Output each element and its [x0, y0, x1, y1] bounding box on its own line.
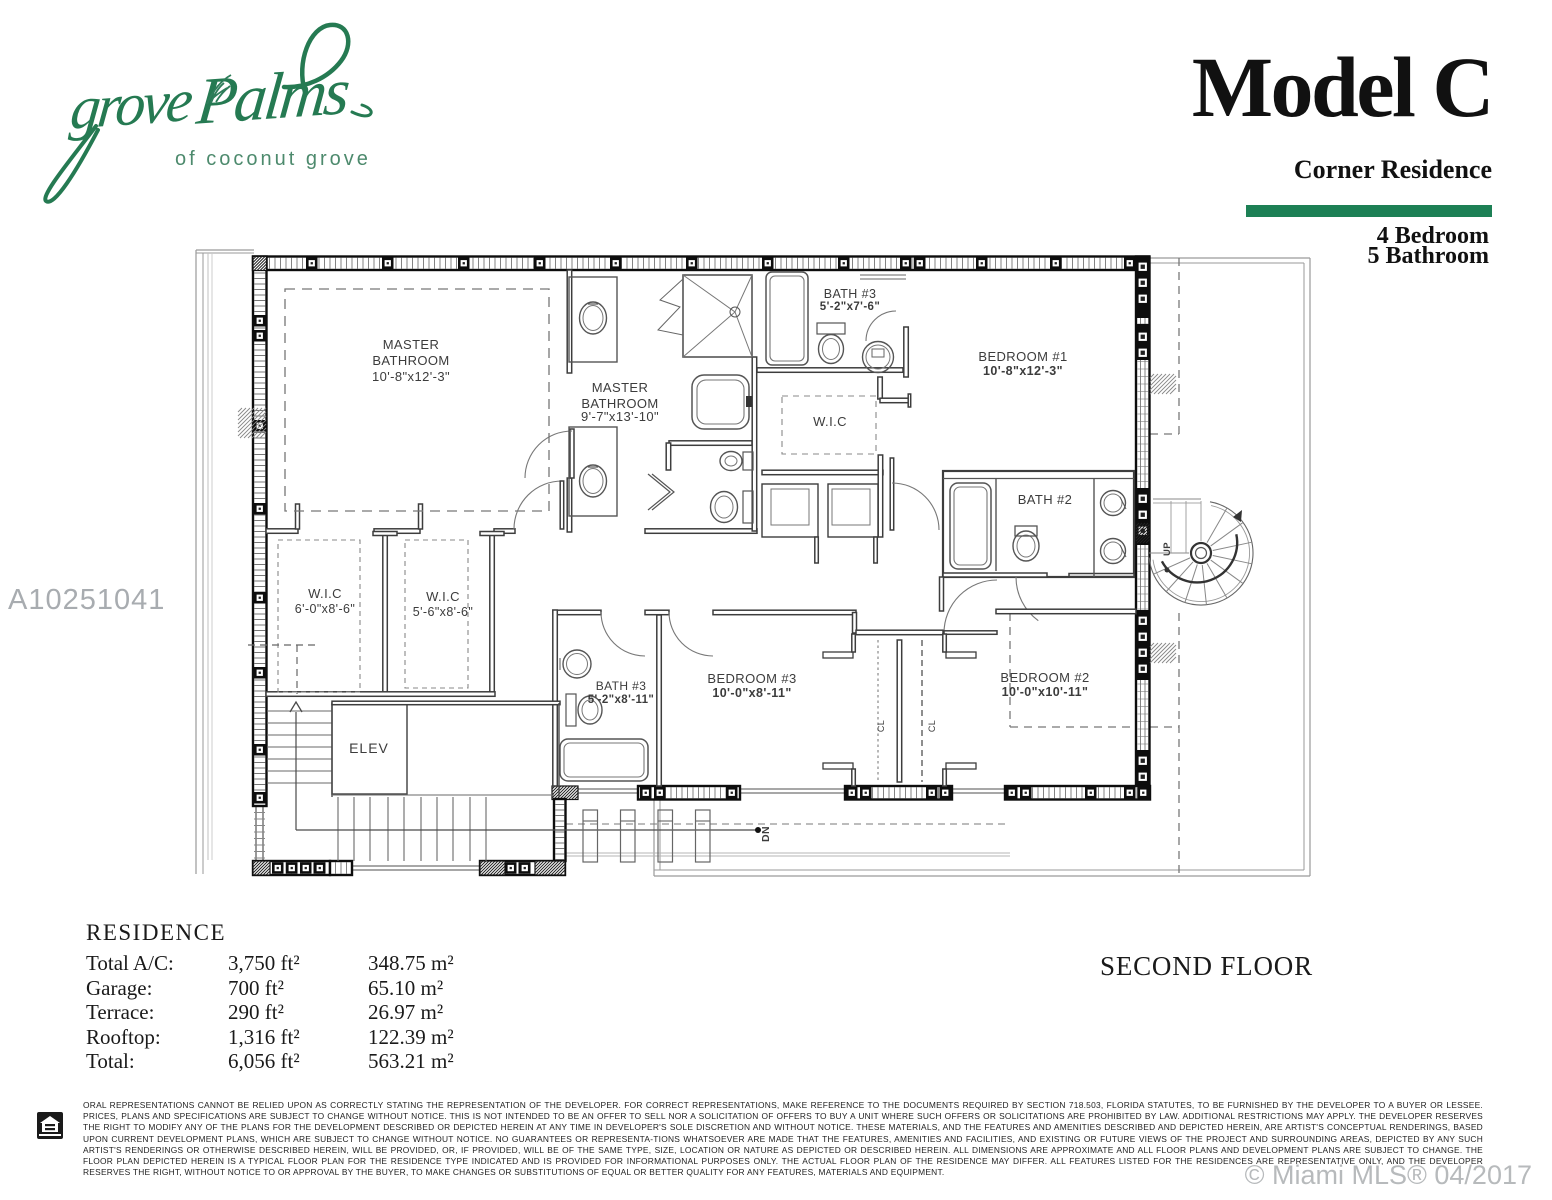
svg-text:W.I.C: W.I.C [308, 586, 342, 601]
svg-text:UP: UP [1162, 542, 1173, 556]
svg-text:9'-7"x13'-10": 9'-7"x13'-10" [581, 409, 659, 424]
svg-text:BATH #2: BATH #2 [1018, 492, 1073, 507]
svg-text:6'-0"x8'-6": 6'-0"x8'-6" [295, 602, 355, 616]
svg-text:10'-8"x12'-3": 10'-8"x12'-3" [983, 364, 1063, 378]
svg-text:DN: DN [760, 826, 772, 842]
svg-text:BEDROOM #2: BEDROOM #2 [1000, 670, 1089, 685]
svg-text:10'-0"x8'-11": 10'-0"x8'-11" [712, 686, 791, 700]
svg-text:BEDROOM #3: BEDROOM #3 [707, 671, 796, 686]
svg-text:BATH #3: BATH #3 [596, 679, 647, 693]
svg-text:5'-6"x8'-6": 5'-6"x8'-6" [413, 605, 473, 619]
svg-text:W.I.C: W.I.C [813, 414, 847, 429]
svg-text:10'-0"x10'-11": 10'-0"x10'-11" [1002, 685, 1089, 699]
svg-text:CL: CL [927, 720, 937, 732]
svg-text:W.I.C: W.I.C [426, 589, 460, 604]
svg-text:5'-2"x7'-6": 5'-2"x7'-6" [820, 301, 880, 313]
svg-text:BATHROOM: BATHROOM [372, 353, 449, 368]
svg-text:BEDROOM #1: BEDROOM #1 [978, 349, 1067, 364]
svg-text:10'-8"x12'-3": 10'-8"x12'-3" [372, 369, 450, 384]
svg-text:5'-2"x8'-11": 5'-2"x8'-11" [588, 694, 655, 706]
svg-text:MASTER: MASTER [592, 380, 649, 395]
svg-text:BATH #3: BATH #3 [824, 287, 877, 301]
svg-text:CL: CL [876, 720, 886, 732]
svg-text:MASTER: MASTER [383, 337, 440, 352]
svg-text:ELEV: ELEV [349, 740, 389, 756]
